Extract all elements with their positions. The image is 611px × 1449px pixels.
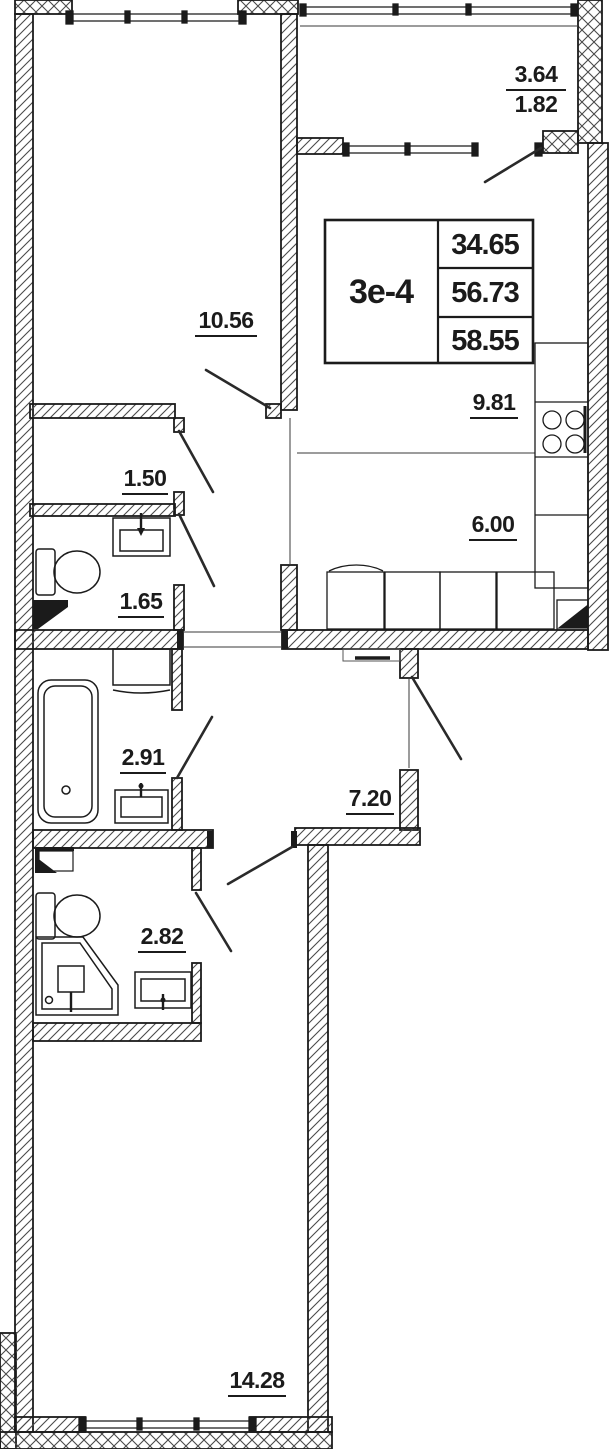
stove-burner [543,411,561,429]
bathroom-fixtures [38,649,170,823]
wall-top-left [15,0,72,14]
shower-valve [58,966,84,992]
living-top-area: 10.56 [198,307,253,333]
room-label-balcony: 3.64 1.82 [506,61,566,117]
bathtub [38,680,98,823]
wall-balcony-bottom-right [543,131,578,153]
exterior-walls [0,0,602,1449]
room-label-bathroom: 2.91 [120,744,166,773]
corner-shower [36,937,118,1015]
jamb [282,630,288,649]
kitchen-fixtures [327,343,588,630]
balcony-reduced-area: 1.82 [515,91,558,117]
door-room-top [206,370,270,408]
door-entry [412,677,461,759]
bathtub-drain [62,786,70,794]
window-room-bottom [79,1417,256,1431]
wall-unit-bottom-left [15,630,183,649]
wall-shower-room-right-b [192,963,201,1023]
wall-wc-top [30,504,175,516]
stove [543,406,585,453]
shower-duct [36,848,74,873]
living-area-value: 34.65 [451,229,519,261]
stove-burner [543,435,561,453]
room-label-kitchen-zone: 6.00 [469,511,517,540]
wall-right-exterior [588,143,608,650]
wall-bathroom-right-b [172,778,182,830]
wall-corridor-right-c [174,585,184,630]
hallway-area: 7.20 [349,785,392,811]
window-room-top [66,11,246,24]
wall-lower-right [308,845,328,1432]
sofa-section [385,572,440,629]
wall-shower-room-right-a [192,848,201,890]
fridge [327,572,384,629]
sofa-row [327,565,554,629]
floor-plan-svg: 3е-4 34.65 56.73 58.55 3.64 1.82 10.56 9… [0,0,611,1449]
room-label-hallway: 7.20 [346,785,394,814]
wall-shower-room-bottom [33,1023,201,1041]
room-label-shower-room: 2.82 [138,923,186,952]
door-wc [179,514,214,586]
corridor-small-area: 1.50 [124,465,167,491]
bathroom-area: 2.91 [122,744,165,770]
kitchen-counter [535,343,588,588]
door-balcony [485,148,541,182]
jamb [207,831,213,848]
title-block: 3е-4 34.65 56.73 58.55 [325,220,533,363]
window-kitchen-balcony [343,143,542,156]
stove-burner [566,411,584,429]
shower-room-area: 2.82 [141,923,184,949]
wall-kitchen-top [297,138,343,154]
door-jambs [177,630,297,848]
wall-hallway-bottom-right [295,828,420,845]
wall-entry-stub-bottom [400,770,418,830]
floor-plan-canvas: 3е-4 34.65 56.73 58.55 3.64 1.82 10.56 9… [0,0,611,1449]
total-area-value: 58.55 [451,325,519,357]
window-balcony-glazing [300,4,578,16]
wall-entry-stub-top [400,649,418,678]
wall-left [15,14,33,1432]
wall-bathroom-right-a [172,649,182,710]
wall-bottom-strip [0,1432,332,1449]
kitchen-duct [557,600,588,630]
kitchen-zone-area: 6.00 [472,511,515,537]
wall-bottom-window-right [250,1417,332,1432]
room-label-living-top: 10.56 [195,307,257,336]
door-room-bottom [228,847,292,884]
room-label-wc: 1.65 [118,588,164,617]
wc-duct [33,600,68,629]
bathroom-sink [115,783,168,823]
apartment-area-value: 56.73 [451,277,519,309]
washing-machine [113,649,170,693]
room-label-living-bottom: 14.28 [228,1367,286,1396]
living-bottom-area: 14.28 [229,1367,285,1393]
door-bathroom [177,717,212,778]
wall-unit-bottom-right [282,630,588,649]
wc-area: 1.65 [120,588,163,614]
stove-burner [566,435,584,453]
wall-hall-stub [281,565,297,630]
fridge-top [329,565,383,571]
room-label-kitchen: 9.81 [470,389,518,418]
jamb [291,831,297,848]
wc-sink [113,513,170,556]
sofa-section [440,572,496,629]
wall-balcony-right [578,0,602,143]
duct-triangle [559,606,587,628]
wall-bottom-window-left [15,1417,85,1432]
jamb [177,630,183,649]
wc-toilet [36,549,100,595]
unit-type-label: 3е-4 [349,273,414,311]
shower-toilet [36,893,100,939]
wall-top-right [238,0,298,14]
sofa-section [497,572,554,629]
balcony-area: 3.64 [515,61,558,87]
shower-sink [135,972,191,1010]
wall-room-kitchen-divider [281,14,297,410]
door-shower-room [196,893,231,951]
wall-hallway-bottom-left [33,830,213,848]
door-corridor-small [179,431,213,492]
room-label-corridor-small: 1.50 [122,465,168,494]
wall-room-top-bottom-a [30,404,175,418]
kitchen-area: 9.81 [473,389,516,415]
electrical-panel [343,649,400,661]
